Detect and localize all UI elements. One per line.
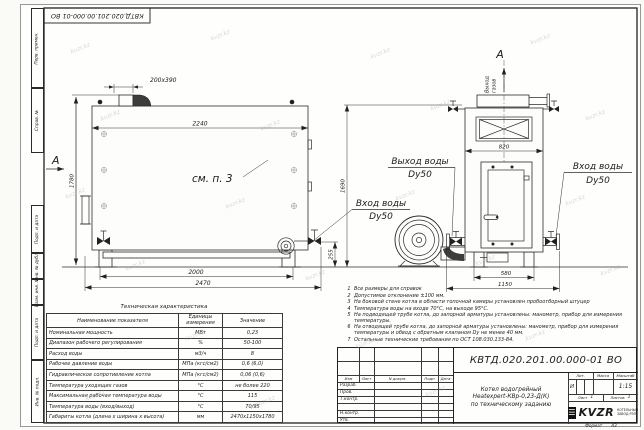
margin-box-podp-data-2: Подп. и дата: [31, 305, 44, 360]
dim-front-total: 2470: [195, 280, 210, 287]
param-value: 115: [223, 391, 283, 402]
param-value: 0,23: [223, 328, 283, 339]
note-number: 6: [344, 325, 354, 336]
table-row: Максимальная рабочая температура воды°С1…: [47, 391, 283, 402]
tech-table-title: Техническая характеристика: [46, 302, 282, 313]
param-name: Рабочее давление воды: [47, 359, 179, 370]
note-text: На отводящей трубе котла, до запорной ар…: [354, 325, 638, 336]
sheet-value: 1: [590, 395, 593, 400]
logo-caption-2: ЗАВОД РЭП: [617, 413, 638, 417]
format-label: Формат А3: [565, 423, 637, 428]
param-name: Габариты котла (длина х ширина х высота): [47, 412, 179, 423]
param-units: °С: [179, 401, 223, 412]
sheet-label: Лист: [578, 395, 588, 400]
kvzr-logo-icon: ☰: [568, 407, 576, 419]
water-inlet-mid-label: Вход воды: [356, 199, 406, 209]
water-outlet-label: Выход воды: [391, 157, 448, 167]
note-item: 1Все размеры для справок: [344, 287, 638, 293]
note-item: 7Остальные технические требования по ОСТ…: [344, 338, 638, 344]
note-number: 7: [344, 338, 354, 344]
table-row: Рабочее давление водыМПа (кгс/см2)0,6 (6…: [47, 359, 283, 370]
rev-col-izm: Изм: [338, 375, 359, 382]
param-value: 70/95: [223, 401, 283, 412]
gas-outlet-label-1: Выход: [485, 76, 491, 93]
col-header-name: Наименование показателя: [47, 314, 179, 328]
section-label-a-right: А: [495, 48, 504, 61]
kvzr-logo-caption: КОТЕЛЬНЫЙ ЗАВОД РЭП: [617, 409, 638, 417]
sign-row-tkontr: Т.контр.: [340, 396, 374, 403]
product-name: Котел водогрейный Heatexpert-КВр-0,23-Д(…: [454, 372, 568, 424]
param-name: Гидравлическое сопротивление котла: [47, 370, 179, 381]
stamp-designation: КВТД.020.201.00.000-01 ВО: [51, 12, 144, 20]
title-block: КВТД.020.201.00.000-01 ВО Изм Лист N док…: [337, 347, 637, 423]
product-line-3: по техническому заданию: [471, 402, 552, 409]
param-value: 2470х1150х1780: [223, 412, 283, 423]
table-row: Диапазон рабочего регулирования%50-100: [47, 338, 283, 349]
param-name: Номинальная мощность: [47, 328, 179, 339]
table-row: Гидравлическое сопротивление котлаМПа (к…: [47, 370, 283, 381]
sign-row-prov: Пров.: [340, 389, 374, 396]
tech-table-header-row: Наименование показателя Единицы измерени…: [47, 314, 283, 328]
dim-front-leg-span: 2000: [188, 269, 203, 276]
scale-header: Масштаб: [613, 372, 638, 379]
margin-box-inv-dubl: Инв. № дубл.: [31, 253, 44, 279]
param-value: 50-100: [223, 338, 283, 349]
param-value: 0,6 (6,0): [223, 359, 283, 370]
param-value: 0,06 (0,6): [223, 370, 283, 381]
sheets-label: Листов: [610, 395, 624, 400]
col-header-units: Единицы измерения: [179, 314, 223, 328]
margin-box-sprav-no: Справ. №: [31, 88, 44, 153]
rev-col-podp: Подп: [421, 375, 438, 382]
lifting-eye-icon: [290, 100, 295, 105]
margin-label: Подп. и дата: [35, 214, 40, 243]
param-units: МПа (кгс/см2): [179, 370, 223, 381]
format-value: А3: [611, 423, 617, 428]
tech-characteristics-table: Техническая характеристика Наименование …: [46, 302, 282, 423]
lit-header: Лит.: [568, 372, 593, 379]
table-row: Габариты котла (длина х ширина х высота)…: [47, 412, 283, 423]
top-stamp: КВТД.020.201.00.000-01 ВО: [44, 8, 150, 23]
water-outlet-dn: Dy50: [408, 170, 432, 180]
drawing-sheet: 200x390 2240 1780 2000 2470 255 А см. п.…: [0, 0, 644, 430]
note-item: 3На боковой стене котла в области топочн…: [344, 300, 638, 306]
lit-value: И: [568, 379, 576, 394]
param-name: Диапазон рабочего регулирования: [47, 338, 179, 349]
param-units: °С: [179, 391, 223, 402]
col-header-units-2: измерения: [181, 321, 220, 326]
dim-front-width: 2240: [192, 121, 207, 128]
lifting-eye-icon: [98, 100, 103, 105]
section-label-a-left: А: [51, 154, 60, 167]
notes-list: 1Все размеры для справок 2Допустимое отк…: [344, 287, 638, 344]
note-text: На боковой стене котла в области топочно…: [354, 300, 638, 306]
see-item-note: см. п. 3: [192, 173, 233, 185]
document-designation: КВТД.020.201.00.000-01 ВО: [454, 348, 638, 372]
furnace-door: [481, 162, 532, 248]
margin-label: Подп. и дата: [35, 318, 40, 347]
margin-label: Перв. примен.: [35, 32, 40, 64]
margin-box-perv-primen: Перв. примен.: [31, 8, 44, 88]
note-item: 6На отводящей трубе котла, до запорной а…: [344, 325, 638, 336]
rev-col-data: Дата: [438, 375, 453, 382]
note-item: 5На подводящей трубе котла, до запорной …: [344, 313, 638, 324]
note-text: Все размеры для справок: [354, 287, 638, 293]
dim-duct: 200x390: [150, 77, 177, 84]
param-name: Максимальная рабочая температура воды: [47, 391, 179, 402]
sign-row-utv: Утв.: [340, 417, 374, 424]
margin-box-inv-podl: Инв. № подл.: [31, 360, 44, 423]
format-word: Формат: [585, 423, 602, 428]
param-value: не более 220: [223, 380, 283, 391]
water-inlet-right-label: Вход воды: [573, 162, 623, 172]
param-units: МВт: [179, 328, 223, 339]
param-value: 8: [223, 349, 283, 360]
margin-label: Инв. № дубл.: [35, 251, 40, 280]
sheets-value: 1: [628, 395, 631, 400]
sheets-cell: Листов 1: [603, 394, 638, 401]
margin-label: Справ. №: [35, 110, 40, 131]
margin-box-vzam-inv: Взам. инв. №: [31, 279, 44, 305]
table-row: Номинальная мощностьМВт0,23: [47, 328, 283, 339]
water-inlet-right-dn: Dy50: [586, 176, 610, 186]
dim-pipe-height: 255: [329, 249, 335, 260]
scale-value: 1:15: [613, 379, 638, 394]
dim-side-height: 1690: [341, 179, 347, 193]
note-text: Остальные технические требования по ОСТ …: [354, 338, 638, 344]
param-units: МПа (кгс/см2): [179, 359, 223, 370]
param-name: Расход воды: [47, 349, 179, 360]
rev-col-ndok: N докум.: [374, 375, 421, 382]
param-units: мм: [179, 412, 223, 423]
param-units: %: [179, 338, 223, 349]
kvzr-logo-text: KVZR: [579, 406, 614, 419]
note-number: 3: [344, 300, 354, 306]
param-units: °С: [179, 380, 223, 391]
rev-col-list: Лист: [359, 375, 374, 382]
gas-outlet-label-2: газов: [492, 79, 498, 93]
sign-row-razrab: Разраб.: [340, 382, 374, 389]
product-line-2: Heatexpert-КВр-0,23-Д(К): [473, 394, 550, 401]
dim-side-leg-span: 580: [501, 271, 512, 277]
param-units: м3/ч: [179, 349, 223, 360]
table-row: Температура уходящих газов°Сне более 220: [47, 380, 283, 391]
col-header-value: Значение: [223, 314, 283, 328]
param-name: Температура воды (вход/выход): [47, 401, 179, 412]
mass-header: Масса: [593, 372, 613, 379]
note-text: На подводящей трубе котла, до запорной а…: [354, 313, 638, 324]
margin-box-podp-data-1: Подп. и дата: [31, 205, 44, 253]
dim-front-height: 1780: [70, 174, 76, 188]
margin-label: Взам. инв. №: [35, 277, 40, 306]
product-line-1: Котел водогрейный: [481, 387, 542, 394]
water-inlet-mid-dn: Dy50: [369, 212, 393, 222]
sign-row-nkontr: Н.контр.: [340, 410, 374, 417]
dim-side-width: 820: [499, 145, 510, 151]
company-logo: ☰ KVZR КОТЕЛЬНЫЙ ЗАВОД РЭП: [568, 401, 638, 424]
note-number: 1: [344, 287, 354, 293]
margin-label: Инв. № подл.: [35, 377, 40, 407]
note-number: 5: [344, 313, 354, 324]
table-row: Температура воды (вход/выход)°С70/95: [47, 401, 283, 412]
table-row: Расход водым3/ч8: [47, 349, 283, 360]
sheet-cell: Лист 1: [568, 394, 603, 401]
param-name: Температура уходящих газов: [47, 380, 179, 391]
